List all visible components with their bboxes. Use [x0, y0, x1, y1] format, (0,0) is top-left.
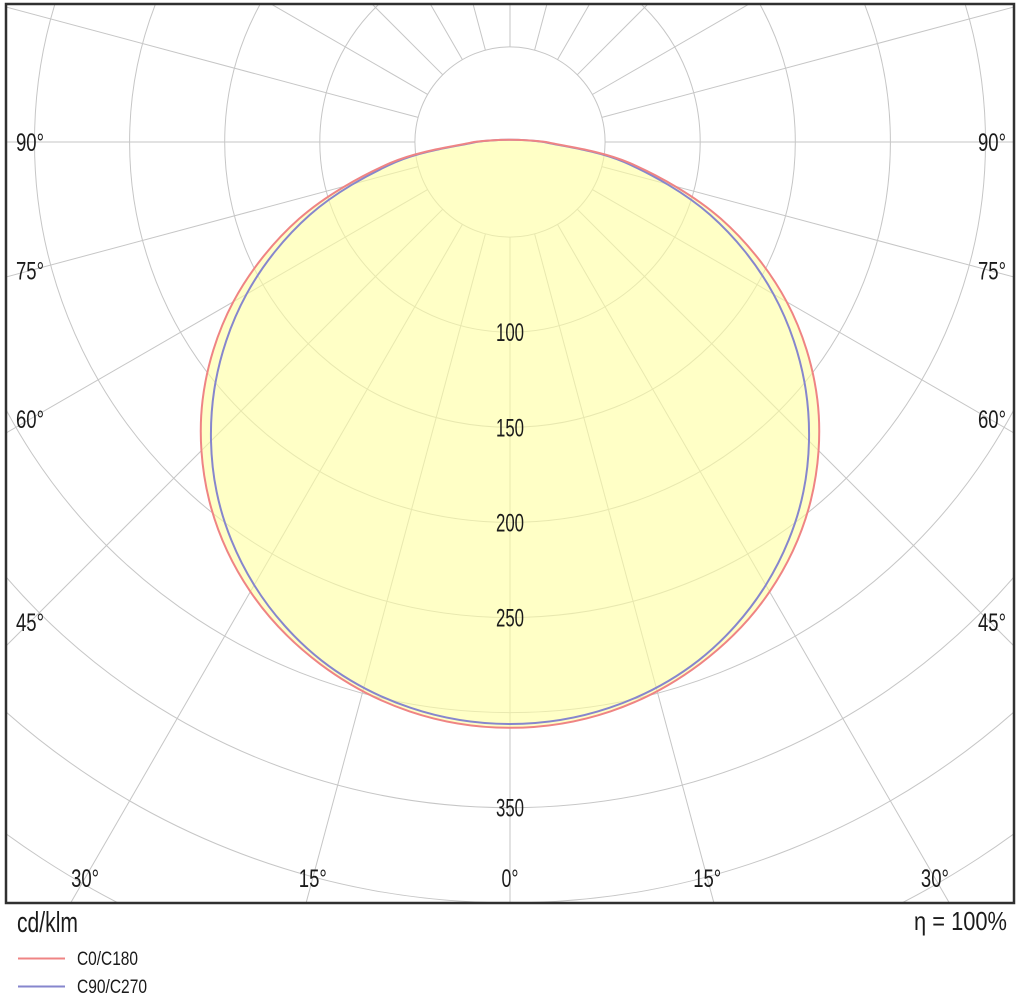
- unit-label: cd/klm: [17, 907, 78, 939]
- efficiency-label: η = 100%: [914, 906, 1007, 936]
- ring-tick-label: 350: [496, 795, 524, 823]
- angle-tick-label: 15°: [693, 865, 721, 893]
- angle-tick-label: 60°: [978, 406, 1006, 434]
- angle-tick-label: 75°: [978, 258, 1006, 286]
- legend-label-c90-c270: C90/C270: [77, 977, 147, 998]
- angle-tick-label: 60°: [16, 406, 44, 434]
- angle-tick-label: 30°: [921, 865, 949, 893]
- angle-tick-label: 0°: [502, 865, 519, 893]
- angle-tick-label: 30°: [71, 865, 99, 893]
- ring-tick-label: 200: [496, 509, 524, 537]
- photometric-polar-diagram: 100150200250350 90°90°75°75°60°60°45°45°…: [0, 0, 1024, 1004]
- angle-tick-label: 45°: [16, 609, 44, 637]
- angle-tick-label: 15°: [299, 865, 327, 893]
- angle-tick-label: 75°: [16, 258, 44, 286]
- polar-intensity-chart: 100150200250350 90°90°75°75°60°60°45°45°…: [0, 0, 1024, 1004]
- legend-label-c0-c180: C0/C180: [77, 949, 138, 970]
- ring-tick-label: 250: [496, 605, 524, 633]
- ring-tick-label: 150: [496, 414, 524, 442]
- ring-tick-label: 100: [496, 319, 524, 347]
- angle-tick-label: 45°: [978, 609, 1006, 637]
- angle-tick-label: 90°: [16, 129, 44, 157]
- angle-tick-label: 90°: [978, 129, 1006, 157]
